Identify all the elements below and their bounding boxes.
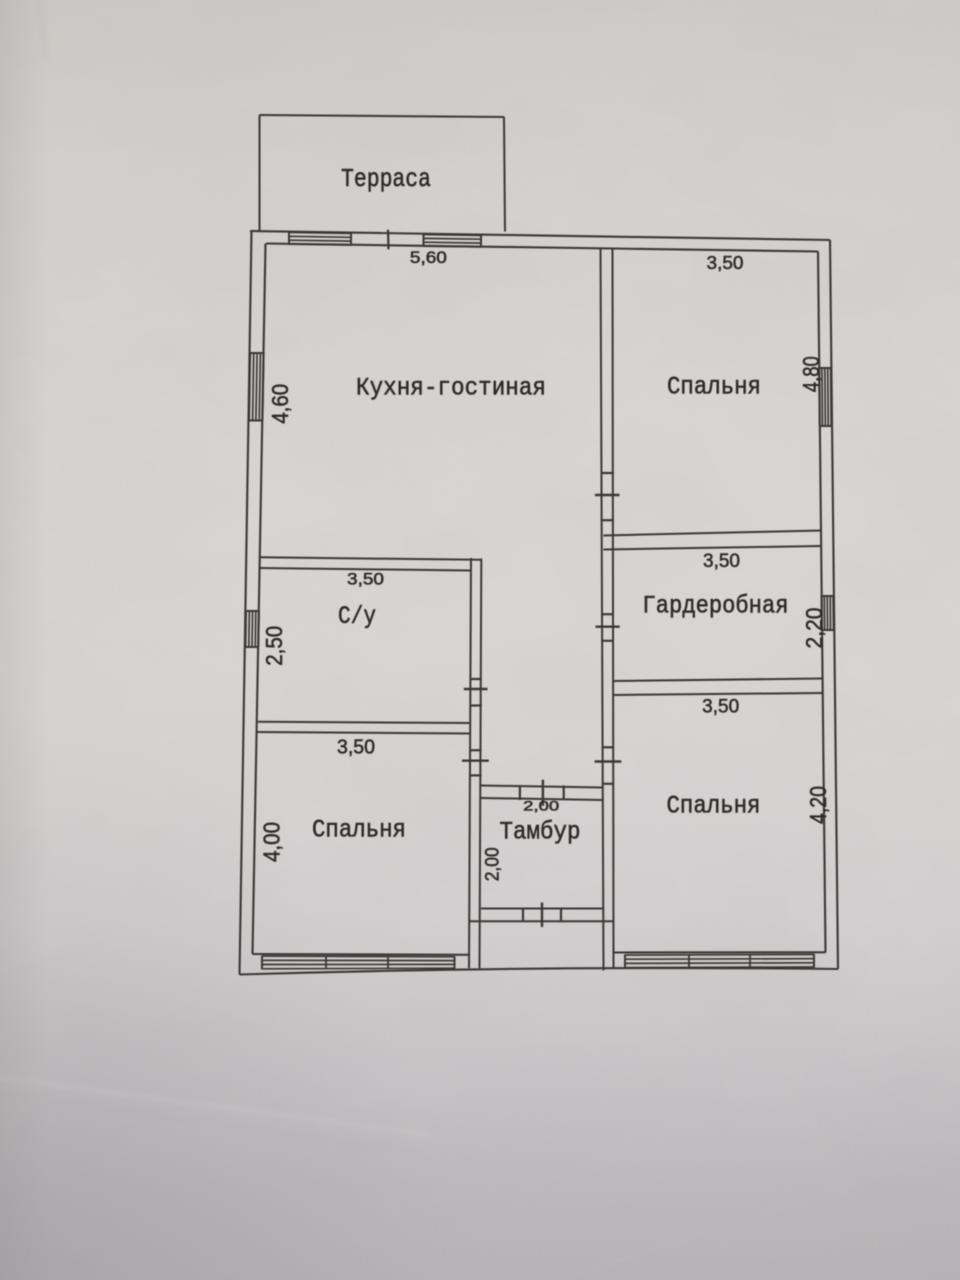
svg-text:Спальня: Спальня <box>312 816 406 845</box>
svg-text:3,50: 3,50 <box>703 551 740 572</box>
svg-text:Терраса: Терраса <box>341 164 431 194</box>
svg-text:3,50: 3,50 <box>347 570 384 589</box>
svg-text:3,50: 3,50 <box>337 736 375 758</box>
svg-text:Гардеробная: Гардеробная <box>643 592 789 621</box>
svg-text:4,80: 4,80 <box>798 356 824 392</box>
svg-text:5,60: 5,60 <box>410 249 447 267</box>
svg-text:2,20: 2,20 <box>801 608 827 649</box>
svg-text:Спальня: Спальня <box>667 792 761 821</box>
svg-text:3,50: 3,50 <box>707 253 744 273</box>
svg-text:2,00: 2,00 <box>482 847 503 881</box>
svg-text:2,50: 2,50 <box>261 626 287 666</box>
svg-text:Кухня-гостиная: Кухня-гостиная <box>356 374 546 403</box>
svg-text:4,20: 4,20 <box>805 786 831 824</box>
svg-text:Тамбур: Тамбур <box>500 818 581 847</box>
svg-text:4,00: 4,00 <box>259 822 285 862</box>
svg-text:4,60: 4,60 <box>267 384 293 424</box>
svg-text:2,00: 2,00 <box>523 798 559 814</box>
svg-text:С/у: С/у <box>338 602 376 631</box>
svg-text:Спальня: Спальня <box>667 372 761 401</box>
svg-text:3,50: 3,50 <box>702 696 739 717</box>
